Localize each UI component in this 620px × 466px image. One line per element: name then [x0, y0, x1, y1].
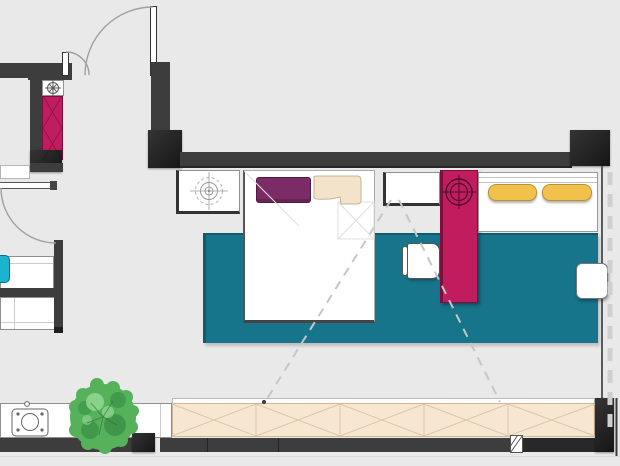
ceiling-fan-icon [45, 80, 61, 96]
section-marker-icon [511, 436, 523, 453]
knob-icon [25, 402, 30, 407]
bench-x-pattern [172, 404, 595, 436]
blanket-fold-diagonals [338, 202, 374, 239]
plan-overlay [0, 0, 620, 466]
spotlight-icon [442, 175, 476, 209]
pillow-cream[interactable] [314, 176, 361, 204]
stove-icon [12, 409, 48, 436]
bed-crease [244, 171, 299, 226]
tree-icon[interactable] [69, 378, 139, 454]
sight-line-left [265, 200, 391, 402]
sight-line-right [399, 200, 500, 402]
door-arc-left-room [1, 188, 56, 243]
sight-line-dot [262, 400, 266, 404]
ceiling-light-icon [190, 172, 228, 210]
cabinet-x-pattern [43, 96, 62, 160]
door-arc-entry [85, 7, 153, 75]
floor-plan-canvas [0, 0, 620, 466]
